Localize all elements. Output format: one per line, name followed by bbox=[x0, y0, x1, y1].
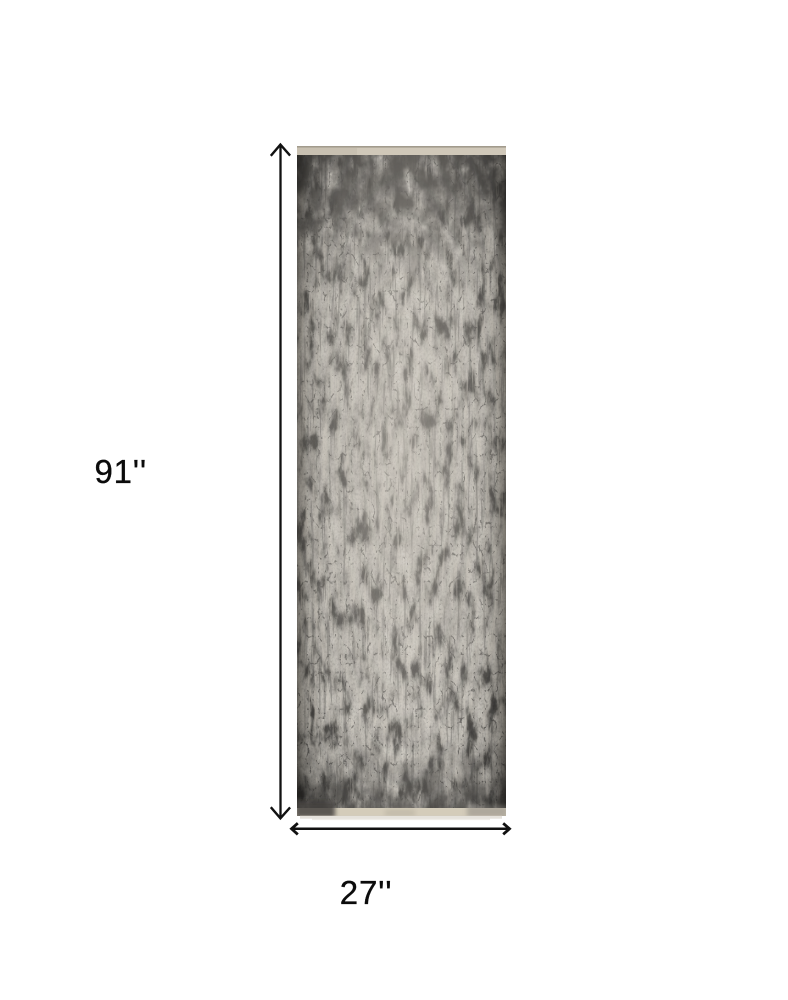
svg-text:27'': 27'' bbox=[340, 874, 393, 911]
svg-text:91'': 91'' bbox=[95, 453, 148, 490]
